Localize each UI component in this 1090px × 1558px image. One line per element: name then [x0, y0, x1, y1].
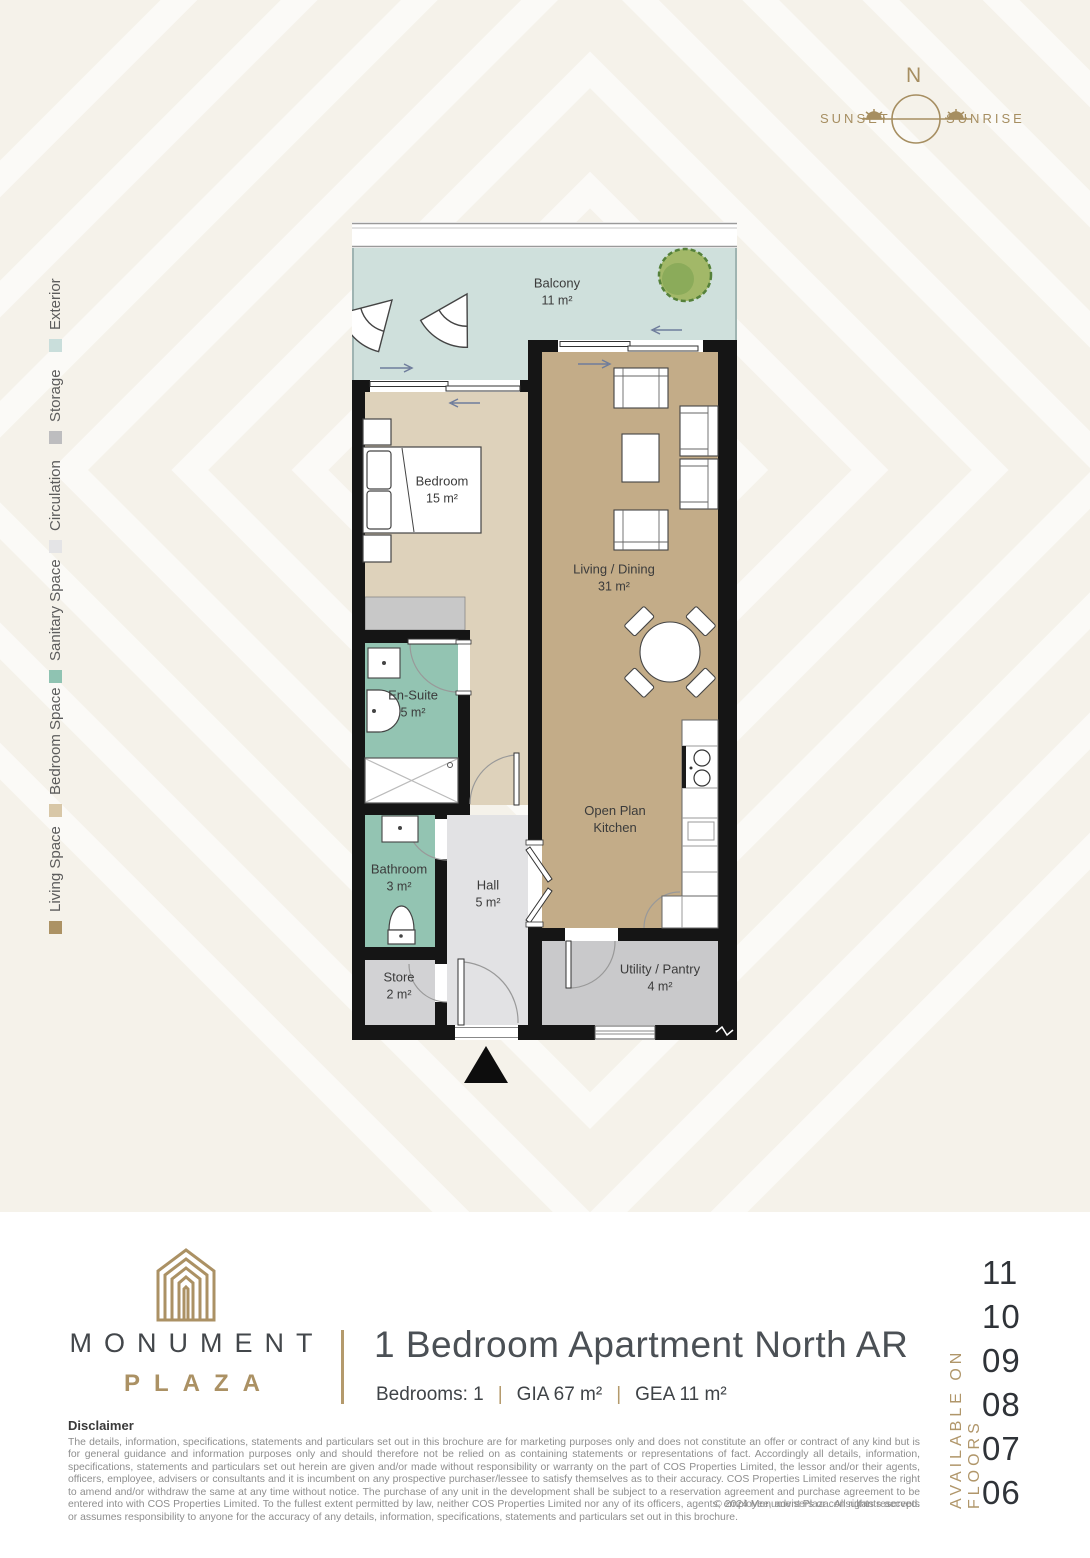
unit-specs: Bedrooms: 1|GIA 67 m²|GEA 11 m²	[376, 1384, 727, 1406]
compass-icon	[808, 88, 1024, 152]
legend-item-sanitary: Sanitary Space	[48, 559, 62, 683]
room-name: Bedroom	[416, 473, 469, 490]
floor-number: 09	[982, 1344, 1021, 1377]
room-name: Bathroom	[371, 861, 427, 878]
legend-swatch-living	[49, 921, 62, 934]
tree-icon	[659, 249, 711, 301]
room-area: 4 m²	[620, 978, 700, 994]
legend-swatch-storage	[49, 431, 62, 444]
legend-swatch-exterior	[49, 339, 62, 352]
room-label-hall: Hall 5 m²	[476, 877, 501, 910]
room-area: 15 m²	[416, 490, 469, 506]
room-name: Balcony	[534, 275, 580, 292]
brand-name: MONUMENT	[35, 1328, 347, 1359]
room-name: En-Suite	[388, 687, 438, 704]
legend-label: Sanitary Space	[47, 559, 64, 661]
room-name: Open Plan Kitchen	[563, 803, 667, 837]
room-label-living: Living / Dining 31 m²	[573, 561, 655, 594]
floor-number: 08	[982, 1388, 1021, 1421]
room-area: 31 m²	[573, 578, 655, 594]
disclaimer-text: The details, information, specifications…	[68, 1437, 920, 1524]
spec-separator: |	[498, 1384, 503, 1405]
room-area: 3 m²	[371, 878, 427, 894]
floor-plan-graphic	[352, 222, 737, 1040]
legend-label: Circulation	[47, 460, 64, 531]
copyright: © 2024 Monument Plaza. All rights reserv…	[714, 1499, 920, 1510]
legend-item-bedroom: Bedroom Space	[48, 687, 62, 817]
legend-swatch-bedroom	[49, 804, 62, 817]
disclaimer-title: Disclaimer	[68, 1418, 134, 1433]
entrance-arrow-icon	[464, 1046, 508, 1083]
legend-item-storage: Storage	[48, 369, 62, 444]
room-area: 2 m²	[383, 986, 414, 1002]
room-label-bathroom: Bathroom 3 m²	[371, 861, 427, 894]
legend-swatch-sanitary	[49, 670, 62, 683]
brand-subname: PLAZA	[35, 1370, 349, 1398]
legend-label: Storage	[47, 369, 64, 422]
spec-bedrooms: Bedrooms: 1	[376, 1384, 484, 1405]
floor-list: 11 10 09 08 07 06	[982, 1256, 1021, 1509]
legend-item-exterior: Exterior	[48, 278, 62, 352]
legend-label: Bedroom Space	[47, 687, 64, 795]
plan-section: N SUNSET SUNRISE Exterior	[0, 0, 1090, 1212]
room-name: Living / Dining	[573, 561, 655, 578]
room-area: 11 m²	[534, 292, 580, 308]
floor-number: 07	[982, 1432, 1021, 1465]
legend-swatch-circulation	[49, 540, 62, 553]
spec-separator: |	[616, 1384, 621, 1405]
room-label-store: Store 2 m²	[383, 969, 414, 1002]
room-name: Hall	[476, 877, 501, 894]
legend-label: Exterior	[47, 278, 64, 330]
brochure-page: N SUNSET SUNRISE Exterior	[0, 0, 1090, 1558]
floor-number: 06	[982, 1476, 1021, 1509]
floor-number: 10	[982, 1300, 1021, 1333]
floor-number: 11	[982, 1256, 1021, 1289]
monument-logo-icon	[154, 1248, 218, 1322]
room-label-kitchen: Open Plan Kitchen	[563, 803, 667, 837]
gold-divider	[341, 1330, 344, 1404]
legend-label: Living Space	[47, 826, 64, 912]
legend-item-living: Living Space	[48, 826, 62, 934]
room-name: Store	[383, 969, 414, 986]
unit-title: 1 Bedroom Apartment North AR	[374, 1324, 908, 1366]
room-label-ensuite: En-Suite 5 m²	[388, 687, 438, 720]
available-on-floors-label: AVAILABLE ON FLOORS	[948, 1264, 984, 1509]
compass-north-label: N	[906, 64, 921, 88]
spec-gia: GIA 67 m²	[517, 1384, 603, 1405]
room-name: Utility / Pantry	[620, 961, 700, 978]
room-label-utility: Utility / Pantry 4 m²	[620, 961, 700, 994]
room-area: 5 m²	[388, 704, 438, 720]
room-area: 5 m²	[476, 894, 501, 910]
room-label-bedroom: Bedroom 15 m²	[416, 473, 469, 506]
floor-plan: Balcony 11 m² Bedroom 15 m² Living / Din…	[352, 222, 737, 1040]
legend-item-circulation: Circulation	[48, 460, 62, 553]
room-label-balcony: Balcony 11 m²	[534, 275, 580, 308]
spec-gea: GEA 11 m²	[635, 1384, 727, 1405]
